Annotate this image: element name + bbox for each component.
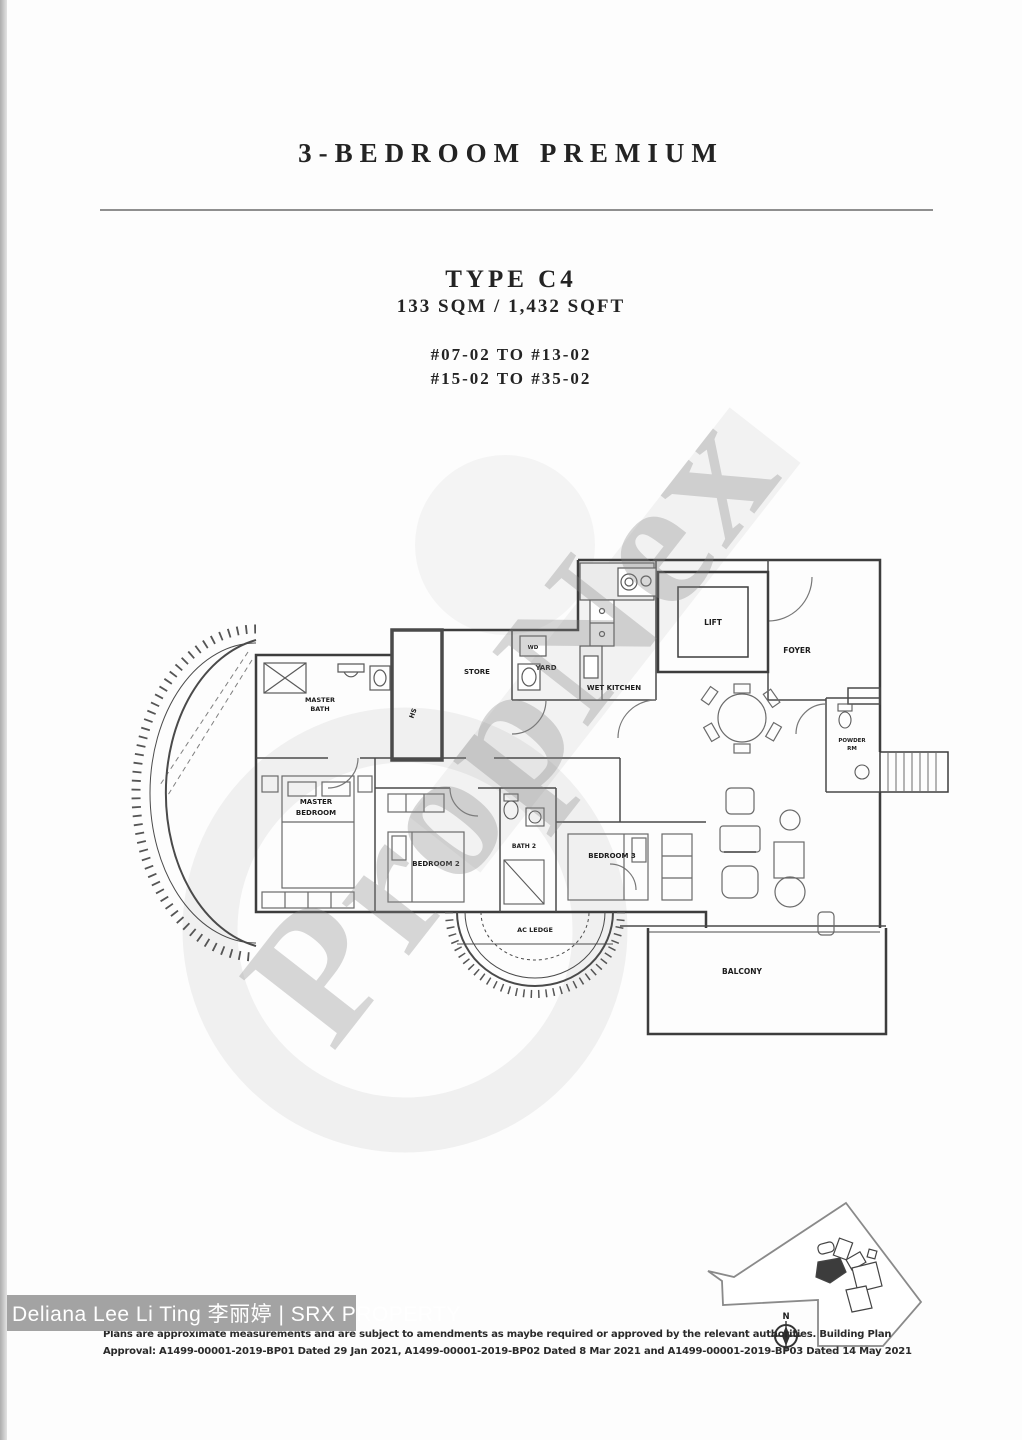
yard-label: YARD [534, 664, 556, 672]
powder-basin-icon [855, 765, 869, 779]
powder-room-label-2: RM [847, 746, 857, 752]
scan-edge-shadow [0, 0, 7, 1440]
master-bedroom-label-2: BEDROOM [296, 809, 336, 817]
coffee-table-icon [722, 866, 758, 898]
powder-toilet-icon [839, 712, 851, 728]
living-furniture [720, 788, 805, 907]
agent-credit-text: Deliana Lee Li Ting 李丽婷 | SRX PROPERTY [12, 1298, 461, 1328]
store-label: STORE [464, 668, 490, 676]
ac-ledge-label: AC LEDGE [517, 926, 553, 934]
console-icon [774, 842, 804, 878]
master-bath-label-2: BATH [310, 705, 329, 713]
foyer-label: FOYER [783, 646, 811, 655]
agent-credit-bar: Deliana Lee Li Ting 李丽婷 | SRX PROPERTY [0, 1295, 356, 1331]
toilet-icon [338, 664, 364, 677]
north-label: N [782, 1312, 789, 1322]
bath2-label: BATH 2 [512, 843, 536, 850]
page-title: 3-BEDROOM PREMIUM [0, 138, 1022, 169]
stack-range-2: #15-02 TO #35-02 [0, 369, 1022, 389]
unit-type: TYPE C4 [0, 266, 1022, 294]
master-bath-label-1: MASTER [305, 696, 335, 704]
bedroom3-label: BEDROOM 3 [588, 852, 636, 860]
title-divider [100, 209, 933, 211]
floor-plan-drawing: STORE YARD WD WET KITCHEN LIFT FOYER MAS… [0, 0, 1022, 1440]
balcony-sliding-door [620, 926, 886, 932]
dining-table [701, 684, 781, 753]
sofa-icon [720, 826, 760, 852]
powder-room-label-1: POWDER [838, 738, 866, 744]
sink-icon [584, 656, 598, 678]
armchair-icon [726, 788, 754, 814]
stack-range-1: #07-02 TO #13-02 [0, 345, 1022, 365]
plant-icon [780, 810, 800, 830]
washer-dryer-label: WD [528, 645, 539, 651]
master-bedroom-label-1: MASTER [300, 798, 333, 806]
lift-label: LIFT [704, 618, 723, 627]
side-table-icon [775, 877, 805, 907]
bedroom2-label: BEDROOM 2 [412, 860, 460, 868]
wet-kitchen-label: WET KITCHEN [587, 684, 641, 692]
unit-area: 133 SQM / 1,432 SQFT [0, 296, 1022, 318]
master-bath-fixtures [264, 663, 390, 693]
watermark-blobs [210, 407, 801, 1125]
disclaimer-line-2: Approval: A1499-00001-2019-BP01 Dated 29… [103, 1346, 943, 1357]
hatched-ledge [888, 752, 936, 792]
balcony-label: BALCONY [722, 967, 762, 976]
